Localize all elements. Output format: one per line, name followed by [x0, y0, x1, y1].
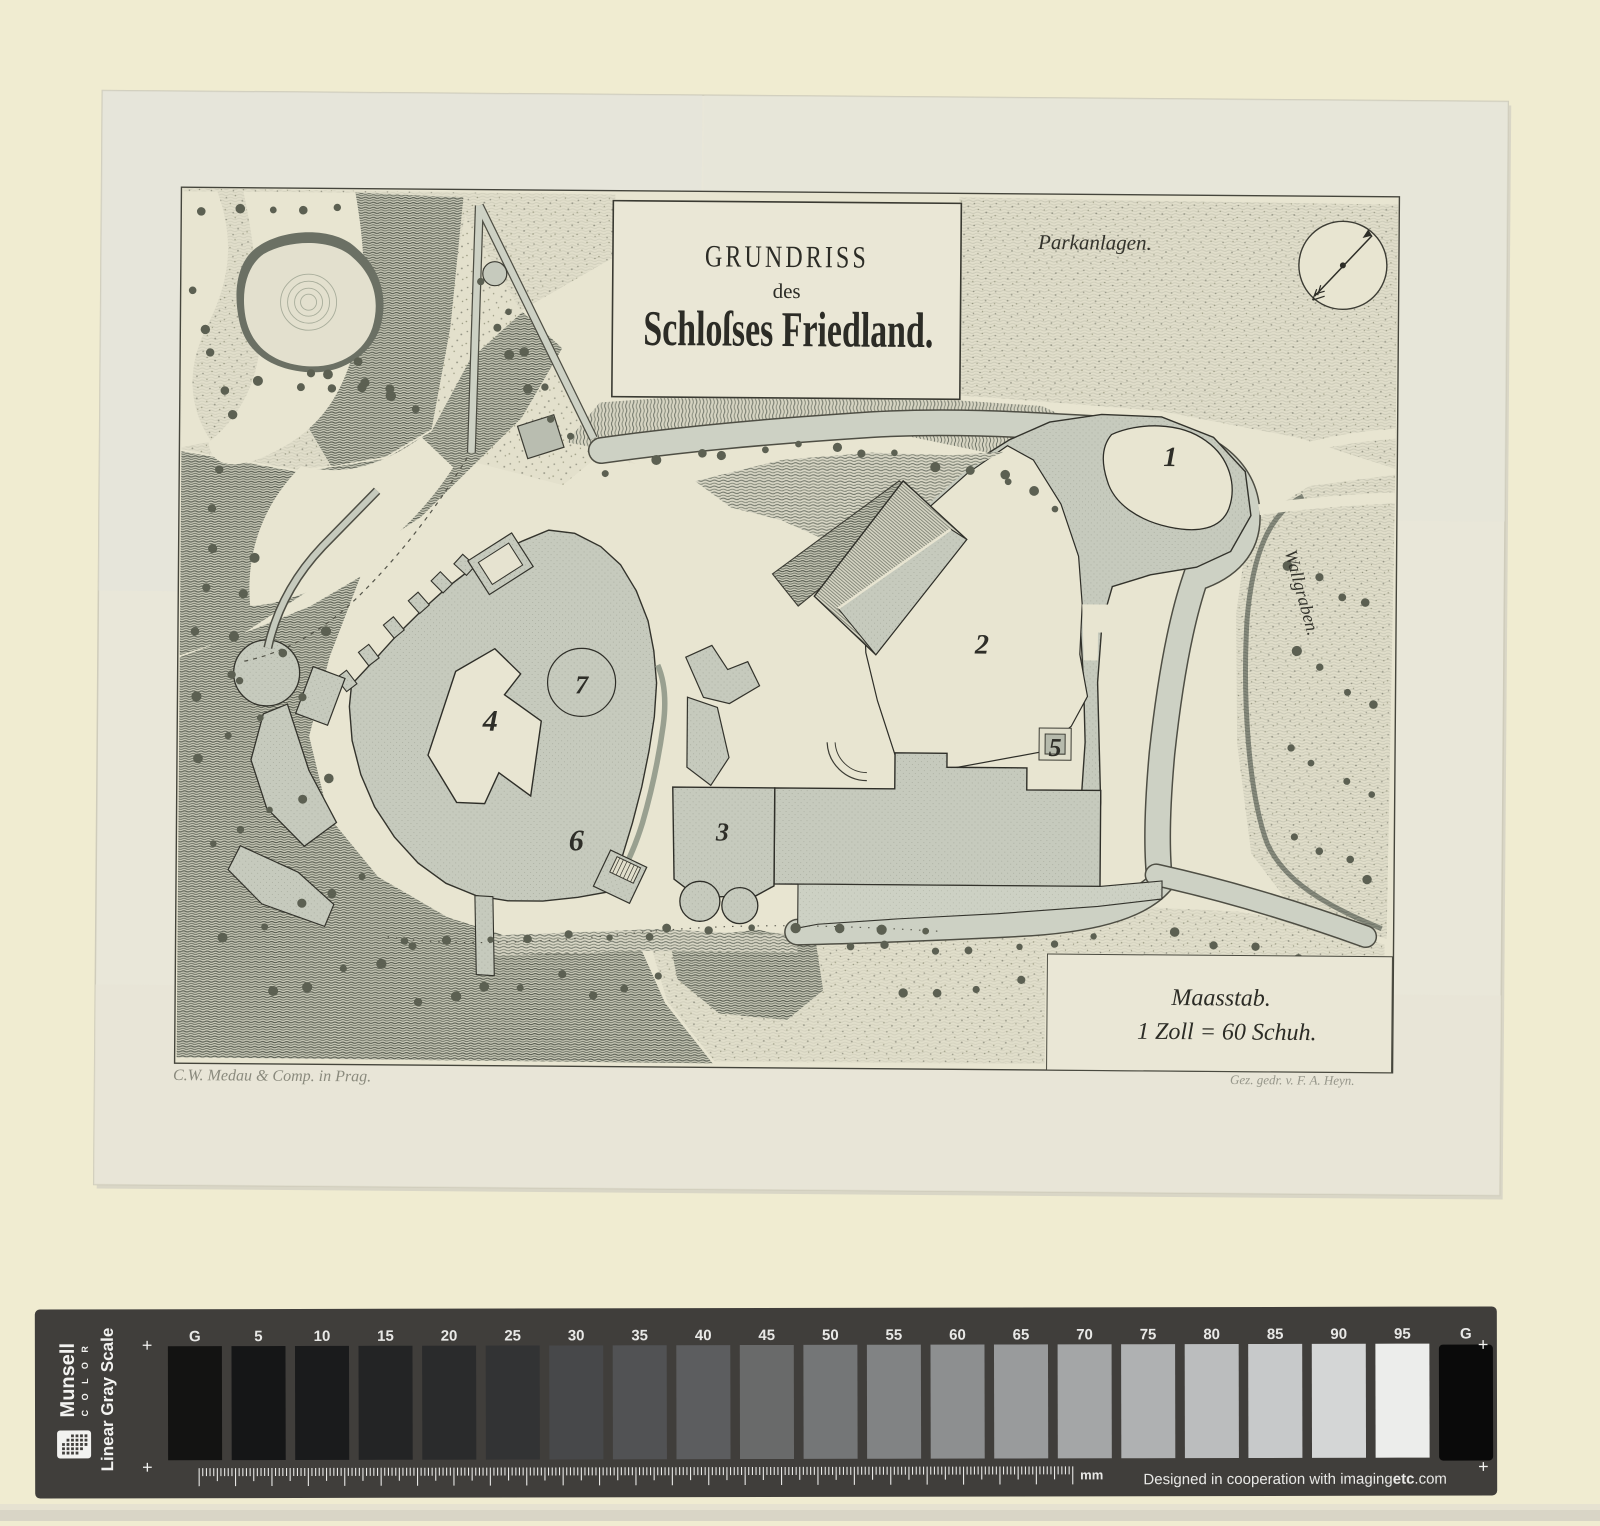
- svg-text:2: 2: [974, 629, 989, 660]
- svg-text:70: 70: [1076, 1326, 1093, 1343]
- svg-text:45: 45: [758, 1327, 775, 1344]
- svg-text:75: 75: [1140, 1326, 1157, 1343]
- svg-text:des: des: [773, 279, 801, 303]
- svg-text:Parkanlagen.: Parkanlagen.: [1037, 230, 1152, 255]
- svg-text:C O L O R: C O L O R: [80, 1343, 90, 1417]
- svg-text:+: +: [142, 1335, 153, 1355]
- svg-text:Schloſses Friedland.: Schloſses Friedland.: [643, 300, 933, 358]
- svg-text:80: 80: [1203, 1326, 1220, 1343]
- svg-text:+: +: [1478, 1456, 1489, 1476]
- svg-text:30: 30: [568, 1327, 585, 1344]
- svg-text:G: G: [189, 1328, 201, 1345]
- svg-text:5: 5: [1048, 733, 1061, 762]
- svg-text:65: 65: [1013, 1326, 1030, 1343]
- svg-text:4: 4: [482, 705, 498, 738]
- svg-text:Munsell: Munsell: [57, 1343, 79, 1417]
- svg-text:5: 5: [254, 1328, 262, 1345]
- svg-text:1 Zoll = 60 Schuh.: 1 Zoll = 60 Schuh.: [1137, 1019, 1317, 1046]
- svg-text:40: 40: [695, 1327, 712, 1344]
- svg-text:GRUNDRISS: GRUNDRISS: [705, 238, 869, 274]
- svg-text:6: 6: [569, 824, 584, 857]
- svg-text:15: 15: [377, 1328, 394, 1345]
- svg-text:Linear Gray Scale: Linear Gray Scale: [98, 1328, 117, 1472]
- svg-text:3: 3: [715, 817, 729, 846]
- svg-text:Designed in cooperation with i: Designed in cooperation with imagingetc.…: [1143, 1471, 1447, 1489]
- svg-text:Gez. gedr. v. F. A. Heyn.: Gez. gedr. v. F. A. Heyn.: [1230, 1072, 1355, 1088]
- svg-text:50: 50: [822, 1327, 839, 1344]
- svg-text:60: 60: [949, 1327, 966, 1344]
- svg-text:+: +: [142, 1457, 153, 1477]
- svg-text:35: 35: [631, 1327, 648, 1344]
- svg-text:95: 95: [1394, 1326, 1411, 1343]
- svg-text:G: G: [1460, 1326, 1472, 1343]
- svg-text:C.W. Medau & Comp. in Prag.: C.W. Medau & Comp. in Prag.: [173, 1067, 371, 1085]
- svg-text:mm: mm: [1080, 1467, 1103, 1482]
- svg-text:1: 1: [1163, 442, 1177, 473]
- svg-text:55: 55: [885, 1327, 902, 1344]
- svg-text:85: 85: [1267, 1326, 1284, 1343]
- svg-text:25: 25: [504, 1328, 521, 1345]
- svg-text:+: +: [1478, 1334, 1489, 1354]
- svg-text:Maasstab.: Maasstab.: [1170, 985, 1271, 1012]
- svg-text:7: 7: [575, 670, 589, 699]
- svg-text:20: 20: [441, 1328, 458, 1345]
- svg-text:10: 10: [314, 1328, 331, 1345]
- svg-text:90: 90: [1330, 1326, 1347, 1343]
